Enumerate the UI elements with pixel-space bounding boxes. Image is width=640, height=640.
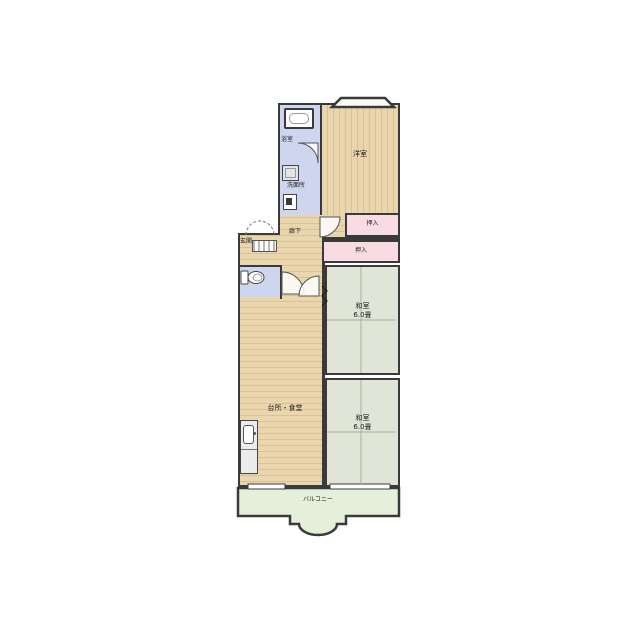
wall-hall-left xyxy=(278,215,280,235)
wall-closet-lower-top xyxy=(322,237,400,240)
kitchen-dining-label: 台所・食堂 xyxy=(245,404,325,413)
entry-mat-icon xyxy=(252,240,277,252)
kitchen-sink-basin xyxy=(243,425,254,444)
western-room-label: 洋室 xyxy=(320,150,400,159)
tatami-room-1-label: 和室 6.0畳 xyxy=(325,302,400,320)
sink-basin xyxy=(286,198,292,205)
bathtub-inner xyxy=(289,113,309,124)
bathtub-icon xyxy=(284,108,314,129)
tatami-room-2-name: 和室 xyxy=(325,414,400,423)
sink-icon xyxy=(283,194,297,210)
entrance-label: 玄関 xyxy=(240,238,252,246)
hallway-alcove xyxy=(322,215,345,237)
tatami-room-1-size: 6.0畳 xyxy=(325,311,400,320)
balcony-label: バルコニー xyxy=(278,496,358,504)
wall-entrance-top xyxy=(238,233,280,235)
room-tatami-1 xyxy=(325,265,400,375)
tatami-room-1-name: 和室 xyxy=(325,302,400,311)
room-western xyxy=(320,103,400,217)
closet-lower-label: 押入 xyxy=(322,247,400,255)
washing-machine-inner xyxy=(285,168,296,178)
wall-kitchen-tatami xyxy=(322,263,325,487)
tatami-room-2-size: 6.0畳 xyxy=(325,423,400,432)
kitchen-sink-icon xyxy=(240,420,258,474)
tatami-room-2-label: 和室 6.0畳 xyxy=(325,414,400,432)
page: { "floor_plan": { "rooms": { "bathroom":… xyxy=(0,0,640,640)
room-toilet xyxy=(238,265,282,299)
washroom-label: 洗面所 xyxy=(287,182,305,190)
bathroom-label: 浴室 xyxy=(281,136,293,144)
floor-plan: 浴室 洗面所 洋室 押入 押入 廊下 玄関 台所・食堂 和室 6.0畳 和室 6… xyxy=(233,96,401,538)
room-hallway xyxy=(280,215,322,487)
kitchen-faucet xyxy=(253,432,256,435)
washing-machine-icon xyxy=(282,165,299,181)
closet-upper-label: 押入 xyxy=(345,220,400,228)
room-tatami-2 xyxy=(325,378,400,487)
kitchen-counter-divider xyxy=(241,449,257,450)
wall-kitchen-bottom xyxy=(238,485,325,488)
hallway-label: 廊下 xyxy=(289,228,301,236)
